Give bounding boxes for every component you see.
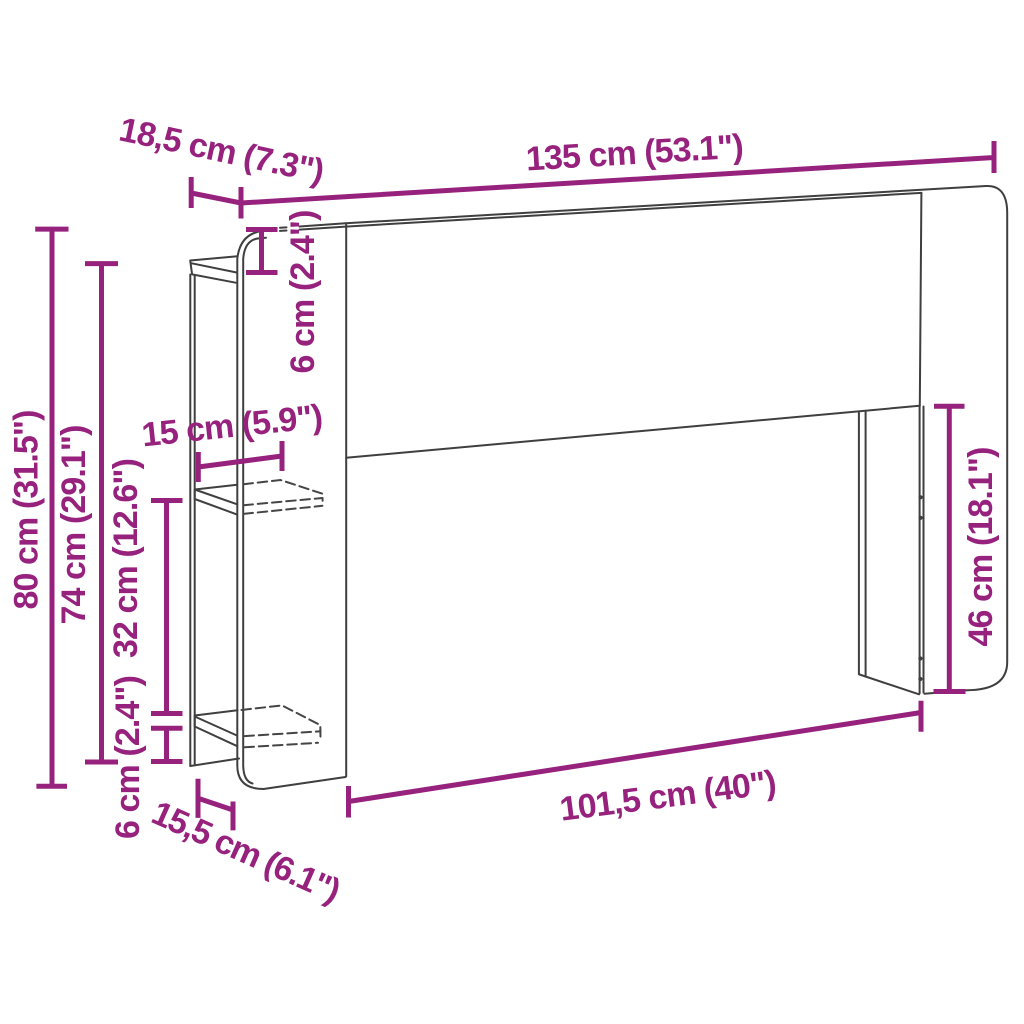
svg-text:74 cm (29.1"): 74 cm (29.1") — [55, 425, 93, 624]
svg-text:6 cm (2.4"): 6 cm (2.4") — [109, 676, 147, 839]
svg-text:32 cm (12.6"): 32 cm (12.6") — [107, 459, 145, 658]
svg-text:46 cm (18.1"): 46 cm (18.1") — [962, 447, 1000, 646]
svg-text:80 cm (31.5"): 80 cm (31.5") — [8, 410, 46, 609]
svg-text:6 cm (2.4"): 6 cm (2.4") — [284, 210, 322, 373]
